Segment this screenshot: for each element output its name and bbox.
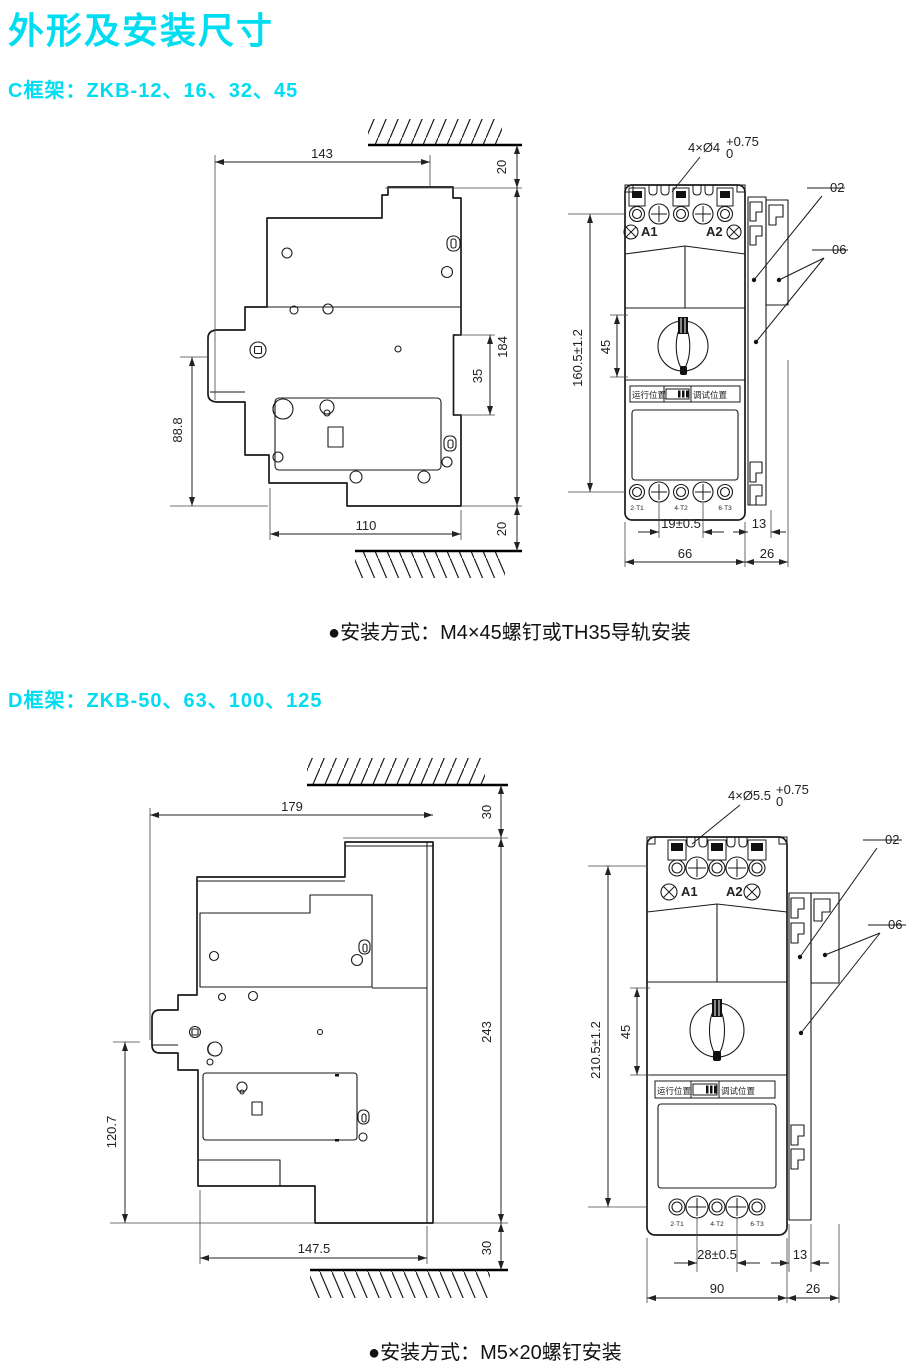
d-frame-front-view: 4×Ø5.5 +0.75 0 A1 A2	[580, 780, 921, 1340]
run-position-label: 运行位置	[657, 1086, 692, 1096]
dim-text-19: 19±0.5	[661, 516, 701, 531]
din-rail-attachment	[748, 197, 788, 505]
wall-hatch-top	[307, 758, 508, 785]
top-terminal-row	[629, 188, 733, 224]
dim-text-88-8: 88.8	[170, 417, 185, 442]
label-window	[658, 1104, 776, 1188]
section-heading-d-frame: D框架：ZKB-50、63、100、125	[8, 684, 322, 713]
dim-text-20-bottom: 20	[494, 522, 509, 536]
terminal-t1-label: 2·T1	[670, 1221, 684, 1228]
dim-d-side-bottom-gap: 30	[479, 1223, 501, 1270]
hole-tol-sub: 0	[726, 146, 733, 161]
dim-text-45: 45	[618, 1025, 633, 1039]
label-window	[632, 410, 738, 480]
rotary-handle[interactable]	[658, 317, 708, 375]
dim-text-110: 110	[356, 518, 377, 533]
top-terminal-row	[668, 840, 766, 879]
breaker-side-outline	[208, 187, 461, 506]
dim-d-side-top-gap: 30	[343, 785, 508, 838]
dim-text-160-5: 160.5±1.2	[570, 329, 585, 387]
dim-text-28: 28±0.5	[697, 1247, 737, 1262]
page: 外形及安装尺寸 C框架：ZKB-12、16、32、45 ●安装方式：M4×45螺…	[0, 0, 921, 1370]
dim-text-30-bottom: 30	[479, 1241, 494, 1255]
hole-tol-sub: 0	[776, 794, 783, 809]
c-frame-front-view: 4×Ø4 +0.75 0 A1 A2	[560, 130, 921, 600]
terminal-a1-label: A1	[681, 884, 698, 899]
breaker-side-holes	[190, 940, 371, 1142]
din-rail-attachment	[789, 893, 839, 1220]
mounting-note-d: ●安装方式：M5×20螺钉安装	[368, 1336, 622, 1365]
dim-c-front-height: 160.5±1.2	[568, 214, 625, 492]
dim-c-front-handle: 45	[598, 315, 628, 377]
dim-text-90: 90	[710, 1281, 724, 1296]
terminal-a2-label: A2	[726, 884, 743, 899]
dim-c-side-total-height: 184	[461, 188, 522, 506]
dim-c-side-top-gap: 20	[385, 145, 522, 188]
run-position-label: 运行位置	[632, 390, 667, 400]
dim-d-front-bottom: 28±0.5 13 90 26	[647, 1218, 839, 1303]
callout-06: 06	[754, 242, 848, 344]
dim-d-side-top-width: 179	[150, 799, 433, 1040]
dim-d-side-lower-height: 120.7	[104, 1042, 315, 1223]
hole-callout: 4×Ø5.5 +0.75 0	[692, 782, 809, 844]
dim-text-45: 45	[598, 340, 613, 354]
dim-c-side-bottom-width: 110	[270, 488, 461, 540]
terminal-t2-label: 4·T2	[674, 505, 688, 512]
breaker-side-outline	[152, 842, 433, 1223]
breaker-side-holes	[250, 236, 460, 483]
callout-06: 06	[799, 917, 906, 1035]
terminal-t3-label: 6·T3	[750, 1221, 764, 1228]
bottom-terminal-row: 2·T1 4·T2 6·T3	[630, 482, 733, 512]
dim-text-147-5: 147.5	[298, 1241, 331, 1256]
hole-callout: 4×Ø4 +0.75 0	[672, 134, 759, 192]
terminal-t3-label: 6·T3	[718, 505, 732, 512]
dim-text-20-top: 20	[494, 160, 509, 174]
dim-c-side-rail-notch: 35	[455, 335, 495, 415]
coil-terminals: A1 A2	[624, 224, 741, 239]
position-indicator-strip: 运行位置 调试位置	[630, 386, 740, 402]
floor-hatch-bottom	[310, 1270, 508, 1298]
dim-text-26: 26	[806, 1281, 820, 1296]
floor-hatch-bottom	[355, 551, 522, 578]
dim-d-side-bottom-width: 147.5	[200, 1190, 427, 1264]
terminal-a1-label: A1	[641, 224, 658, 239]
dim-text-243: 243	[479, 1021, 494, 1043]
terminal-t1-label: 2·T1	[630, 505, 644, 512]
callout-02: 02	[798, 832, 902, 959]
breaker-front-body	[647, 837, 787, 1235]
dim-c-side-top-width: 143	[215, 146, 430, 400]
dim-text-13: 13	[752, 516, 766, 531]
c-frame-side-view: 143 20 184 35 88.8 110	[150, 110, 550, 580]
dim-text-66: 66	[678, 546, 692, 561]
test-position-label: 调试位置	[721, 1086, 756, 1096]
dim-text-179: 179	[281, 799, 303, 814]
dim-d-side-total-height: 243	[433, 838, 508, 1223]
hole-note: 4×Ø4	[688, 140, 720, 155]
wall-hatch-top	[368, 119, 522, 145]
test-position-label: 调试位置	[693, 390, 728, 400]
dim-text-35: 35	[470, 369, 485, 383]
dim-text-13: 13	[793, 1247, 807, 1262]
front-face-lines	[625, 246, 745, 380]
section-heading-c-frame: C框架：ZKB-12、16、32、45	[8, 74, 298, 103]
dim-c-side-bottom-gap: 20	[494, 506, 517, 551]
dim-text-30-top: 30	[479, 805, 494, 819]
terminal-a2-label: A2	[706, 224, 723, 239]
bottom-terminal-row: 2·T1 4·T2 6·T3	[669, 1196, 765, 1228]
mounting-note-c: ●安装方式：M4×45螺钉或TH35导轨安装	[328, 616, 691, 645]
terminal-t2-label: 4·T2	[710, 1221, 724, 1228]
hole-note: 4×Ø5.5	[728, 788, 771, 803]
dim-d-front-handle: 45	[618, 988, 650, 1075]
front-face-lines	[647, 904, 787, 1075]
dim-text-26: 26	[760, 546, 774, 561]
coil-terminals: A1 A2	[661, 884, 760, 900]
dim-text-210-5: 210.5±1.2	[588, 1021, 603, 1079]
dim-c-side-lower-height: 88.8	[170, 357, 268, 506]
dim-text-120-7: 120.7	[104, 1116, 119, 1149]
position-indicator-strip: 运行位置 调试位置	[655, 1081, 775, 1098]
dim-text-184: 184	[495, 336, 510, 358]
dim-text-143: 143	[311, 146, 333, 161]
d-frame-side-view: 179 30 243 120.7 147.5 30	[80, 740, 530, 1300]
rotary-handle[interactable]	[690, 999, 744, 1061]
page-title: 外形及安装尺寸	[8, 2, 274, 54]
